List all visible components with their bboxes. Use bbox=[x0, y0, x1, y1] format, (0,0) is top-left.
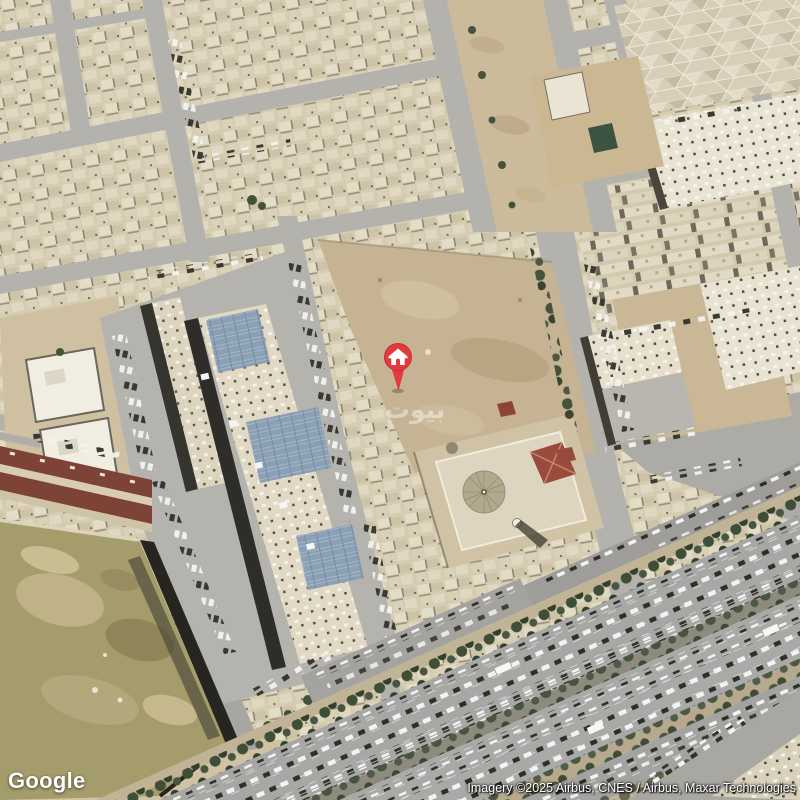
map-canvas[interactable]: بيوت Google Imagery ©2025 Airbus, CNES /… bbox=[0, 0, 800, 800]
imagery-attribution: Imagery ©2025 Airbus, CNES / Airbus, Max… bbox=[467, 781, 796, 795]
satellite-imagery: بيوت bbox=[0, 0, 800, 800]
google-logo[interactable]: Google bbox=[8, 768, 86, 794]
map-watermark: بيوت bbox=[385, 395, 445, 425]
